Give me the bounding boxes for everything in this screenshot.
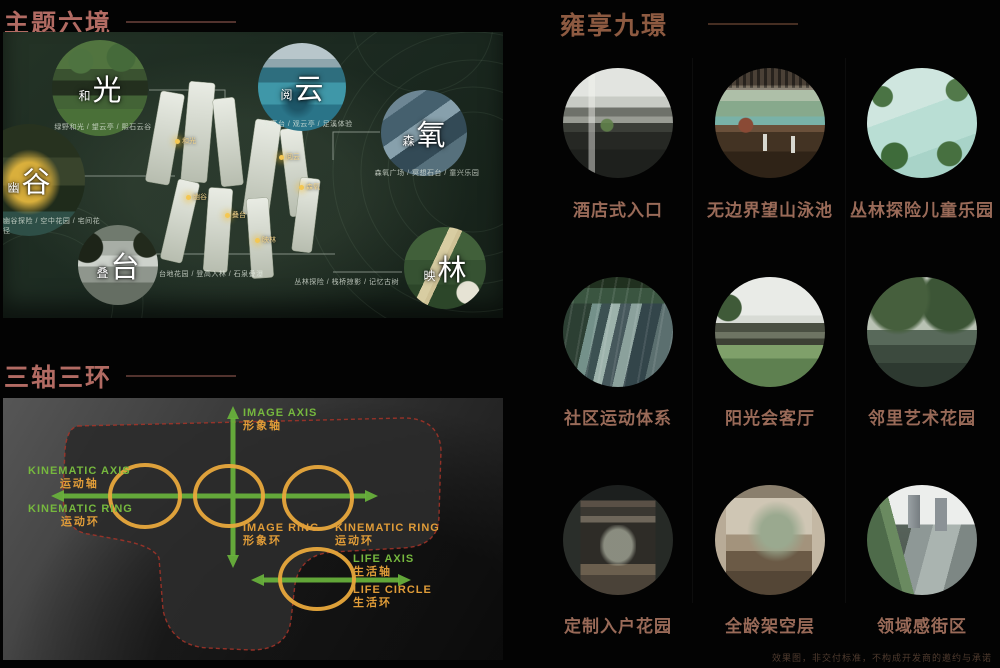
label-kinematic-ring-left: KINEMATIC RING 运动环: [28, 503, 133, 528]
scene-caption: 丛林探险儿童乐园: [837, 196, 1000, 221]
three-axes-title: 三轴三环: [4, 358, 112, 394]
realm-photo-forest: 映林: [404, 227, 486, 309]
glow-dot-icon: [186, 195, 191, 200]
plan-marker: 阅云: [279, 152, 300, 162]
glow-dot-icon: [279, 155, 284, 160]
scene-caption: 领域感街区: [837, 612, 1000, 637]
title-rule: [126, 375, 236, 377]
scene-photo-art-garden: [867, 277, 977, 387]
glow-dot-icon: [299, 185, 304, 190]
scene-photo-hotel-entrance: [563, 68, 673, 178]
plan-marker: 森氧: [299, 182, 320, 192]
glow-dot-icon: [175, 139, 180, 144]
scene-photo-street-block: [867, 485, 977, 595]
scene-photo-jungle-playground: [867, 68, 977, 178]
label-life-axis: LIFE AXIS 生活轴: [353, 553, 414, 578]
scene-caption: 邻里艺术花园: [837, 404, 1000, 429]
scene-caption: 全龄架空层: [685, 612, 855, 637]
realm-caption: 乐水高台 / 观云亭 / 足溪体验: [246, 119, 362, 129]
label-kinematic-ring-right: KINEMATIC RING 运动环: [335, 522, 440, 547]
nine-scenes-header: 雍享九璟: [560, 6, 798, 42]
realm-photo-cloud: 阅云: [258, 43, 346, 131]
column-separator: [692, 58, 693, 603]
label-life-circle: LIFE CIRCLE 生活环: [353, 584, 432, 609]
plan-marker: 映林: [255, 235, 276, 245]
scene-photo-stilt-floor: [715, 485, 825, 595]
plan-marker: 和光: [175, 136, 196, 146]
glow-dot-icon: [255, 238, 260, 243]
realm-photo-terrace: 叠台: [78, 225, 158, 305]
realm-caption: 绿野和光 / 望云亭 / 熙石云谷: [43, 122, 163, 132]
three-axes-header: 三轴三环: [4, 358, 236, 394]
title-rule: [708, 23, 798, 25]
realm-caption: 幽谷探险 / 空中花园 / 宅间花径: [3, 216, 103, 236]
column-separator: [845, 58, 846, 603]
title-rule: [126, 21, 236, 23]
label-image-axis: IMAGE AXIS 形象轴: [243, 407, 317, 432]
label-kinematic-axis: KINEMATIC AXIS 运动轴: [28, 465, 131, 490]
scene-photo-entry-garden: [563, 485, 673, 595]
realm-photo-oxygen: 森氧: [381, 90, 467, 176]
scene-caption: 阳光会客厅: [685, 404, 855, 429]
scene-caption: 社区运动体系: [533, 404, 703, 429]
glow-dot-icon: [225, 213, 230, 218]
scene-caption: 酒店式入口: [533, 196, 703, 221]
label-image-ring: IMAGE RING 形象环: [243, 522, 320, 547]
six-realms-plan: 和光 阅云 森氧 幽谷 叠台 映林 绿野和光 / 望云亭 / 熙石云谷 乐水高台…: [3, 32, 503, 318]
realm-caption: 丛林探险 / 栈桥掠影 / 记忆古树: [261, 277, 399, 287]
scene-photo-sun-lounge: [715, 277, 825, 387]
three-axes-diagram: IMAGE AXIS 形象轴 KINEMATIC AXIS 运动轴 KINEMA…: [3, 398, 503, 660]
disclaimer-text: 效果图，非交付标准，不构成开发商的邀约与承诺: [772, 651, 992, 664]
plan-marker: 叠台: [225, 210, 246, 220]
scene-photo-infinity-pool: [715, 68, 825, 178]
scene-caption: 无边界望山泳池: [685, 196, 855, 221]
nine-scenes-title: 雍享九璟: [560, 6, 668, 42]
scene-caption: 定制入户花园: [533, 612, 703, 637]
realm-caption: 森氧广场 / 冥想石台 / 童兴乐园: [365, 168, 489, 178]
slide: 主题六境: [0, 0, 1000, 668]
plan-marker: 幽谷: [186, 192, 207, 202]
scene-photo-sports-system: [563, 277, 673, 387]
